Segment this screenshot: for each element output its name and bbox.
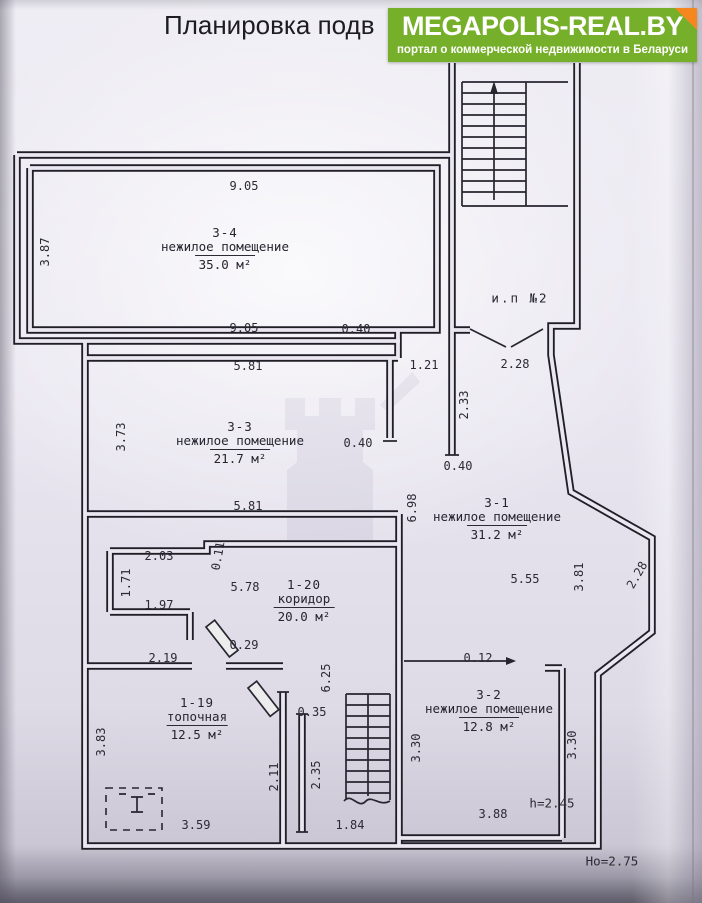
dimension-label: 0.35 [298,705,327,719]
room-area: 20.0 м² [274,607,335,624]
room-id: 3-3 [176,420,304,434]
dimension-label: 9.05 [230,179,259,193]
dimension-label: 1.21 [410,358,439,372]
dimension-label: 2.03 [145,549,174,563]
dimension-label: 1.84 [336,818,365,832]
dimension-label: 5.81 [234,499,263,513]
dimension-label: 0.40 [444,459,473,473]
room-label: 3-1нежилое помещение31.2 м² [433,496,561,542]
dimension-label: 3.87 [38,238,52,267]
dimension-label: 6.25 [319,664,333,693]
room-label: 1-19топочная12.5 м² [167,696,228,742]
dimension-label: 3.73 [114,423,128,452]
room-id: 3-4 [161,226,289,240]
dimension-label: 3.81 [572,563,586,592]
dimension-label: 2.33 [457,391,471,420]
dimension-label: 0.40 [342,322,371,336]
room-area: 21.7 м² [210,449,271,466]
room-name: нежилое помещение [161,240,289,254]
dimension-label: 1.71 [119,569,133,598]
room-name: нежилое помещение [433,510,561,524]
dimension-label: 3.88 [479,807,508,821]
dimension-label: 2.35 [309,761,323,790]
room-label: 1-20коридор20.0 м² [274,578,335,624]
dimension-label: 3.59 [182,818,211,832]
room-id: 1-20 [274,578,335,592]
room-label: 3-4нежилое помещение35.0 м² [161,226,289,272]
stairwell-label: и.п №2 [491,291,548,306]
room-id: 3-2 [425,688,553,702]
note-label: Но=2.75 [586,854,639,869]
room-label: 3-2нежилое помещение12.8 м² [425,688,553,734]
room-area: 35.0 м² [195,255,256,272]
room-label: 3-3нежилое помещение21.7 м² [176,420,304,466]
room-area: 12.8 м² [459,717,520,734]
dimension-label: 0.12 [464,651,493,665]
dimension-label: 0.29 [230,638,259,652]
dimension-label: 0.40 [344,436,373,450]
room-id: 1-19 [167,696,228,710]
note-label: h=2.45 [529,796,574,811]
screenshot-root: Планировка подв MEGAPOLIS-REAL.BY портал… [0,0,702,903]
room-name: топочная [167,710,228,724]
partition-arrow-icon [506,657,516,665]
dimension-label: 5.81 [234,359,263,373]
stair-direction-arrow-icon [490,81,498,94]
dimension-label: 5.78 [231,580,260,594]
dimension-label: 6.98 [405,494,419,523]
dimension-label: 5.55 [511,572,540,586]
room-name: коридор [274,592,335,606]
room-name: нежилое помещение [176,434,304,448]
room-id: 3-1 [433,496,561,510]
room-area: 12.5 м² [167,725,228,742]
floor-plan-drawing [0,0,702,903]
room-area: 31.2 м² [467,525,528,542]
dimension-label: 2.28 [501,357,530,371]
dimension-label: 2.19 [149,651,178,665]
dimension-label: 3.30 [565,731,579,760]
dimension-label: 2.11 [267,763,281,792]
door-leaf-icon [248,681,279,716]
dimension-label: 1.97 [145,598,174,612]
room-name: нежилое помещение [425,702,553,716]
dimension-label: 3.30 [409,734,423,763]
dimension-label: 3.83 [94,728,108,757]
dimension-label: 9.05 [230,321,259,335]
